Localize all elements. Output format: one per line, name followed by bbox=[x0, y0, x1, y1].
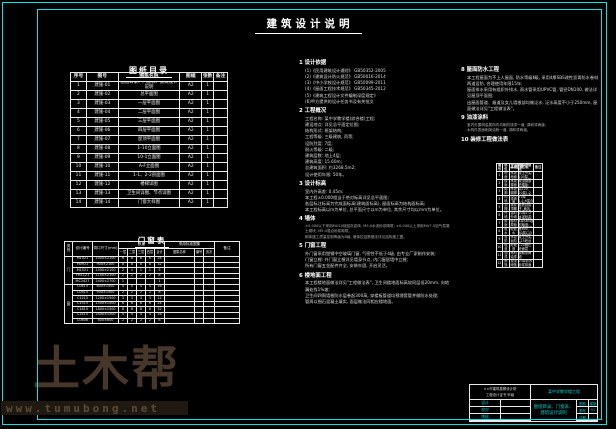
catalog-cell-size: A2 bbox=[180, 199, 202, 208]
catalog-cell-size: A2 bbox=[180, 82, 202, 91]
finish-header-name: 名称 bbox=[510, 164, 519, 172]
catalog-cell-name: 图纸目录、门窗表、建筑设计说明 bbox=[119, 82, 181, 91]
dw-header-qty-group: 数量 一层 二层 三层 四层 合计 bbox=[119, 242, 165, 257]
catalog-cell-count: 1 bbox=[202, 100, 214, 109]
catalog-cell-size: A2 bbox=[180, 190, 202, 199]
dw-header-floor3: 三层 bbox=[137, 249, 146, 257]
finish-cell-method: C20细石砼面层 bbox=[519, 244, 535, 252]
finish-cell-method: 4厚SBS卷材两道; 20厚砂浆保护层 bbox=[519, 220, 535, 228]
sheet-info-value bbox=[589, 414, 597, 420]
finish-cell-note bbox=[534, 252, 543, 260]
sheet-info-label: 图别 bbox=[577, 400, 589, 406]
catalog-cell-size: A2 bbox=[180, 145, 202, 154]
catalog-cell-no: 6 bbox=[71, 127, 87, 136]
catalog-cell-note bbox=[214, 199, 228, 208]
catalog-cell-no: 5 bbox=[71, 118, 87, 127]
finish-cell-name: 木材油漆 bbox=[510, 252, 519, 260]
finish-cell-method: 20厚1:3水泥砂浆; 外墙涂料 bbox=[519, 212, 535, 220]
catalog-cell-count: 1 bbox=[202, 136, 214, 145]
finish-header-row: 编号 部位 名称 用料及做法 备注 bbox=[497, 164, 543, 172]
finish-cell-name: 现浇雨篷 bbox=[510, 260, 519, 268]
catalog-row: 11 建施-11 1-1、2-2剖面图 A2 1 bbox=[71, 172, 228, 181]
catalog-cell-no: 1 bbox=[71, 82, 87, 91]
finish-cell-part: 地面 bbox=[503, 172, 510, 180]
dw-header-qty-sub: 一层 二层 三层 四层 合计 bbox=[119, 249, 165, 257]
finish-cell-note bbox=[534, 212, 543, 220]
title-block-bottom: 设计 校对 审核 图纸目录、门窗表、建筑设计说明 图别 建施 bbox=[470, 400, 597, 421]
catalog-cell-no: 9 bbox=[71, 154, 87, 163]
finish-row: 9 台阶 水泥台阶 素土夯实, C15砼台阶 bbox=[497, 236, 543, 244]
sheet-title-text: 建筑设计说明 bbox=[255, 16, 362, 34]
catalog-cell-name: 二层平面图 bbox=[119, 109, 181, 118]
note-line: ±0.000以下采用MU10烧结页岩砖, M5.0水泥砂浆砌筑; ±0.000以… bbox=[299, 224, 453, 235]
note-line: 屋面排水采用有组织外排水, 雨水管采用UPVC管, 管径DN100, 做法详见屋… bbox=[461, 87, 600, 99]
dw-header-qty: 数量 bbox=[119, 242, 165, 249]
dw-header-note: 备注 bbox=[215, 242, 240, 257]
finish-cell-name: 砼散水 bbox=[510, 228, 519, 236]
catalog-header-no: 序号 bbox=[71, 73, 87, 82]
finish-cell-part: 楼面 bbox=[503, 180, 510, 188]
catalog-cell-no: 10 bbox=[71, 163, 87, 172]
catalog-cell-no: 11 bbox=[71, 172, 87, 181]
design-notes-right: 8 屋面防水工程本工程屋面为不上人屋面, 防水等级Ⅱ级, 采用4厚SBS改性沥青… bbox=[461, 64, 600, 144]
note-line: (6)甲方提供的设计任务书及有关批文 bbox=[299, 99, 453, 105]
catalog-cell-name: A-F立面图 bbox=[119, 163, 181, 172]
door-window-main: 设计编号 洞口尺寸(mm) 数量 一层 二层 三层 四层 合计 采用标准图集 图 bbox=[73, 242, 240, 324]
catalog-cell-code: 建施-11 bbox=[87, 172, 119, 181]
catalog-cell-code: 建施-05 bbox=[87, 118, 119, 127]
catalog-header-name: 图纸名称 bbox=[119, 73, 181, 82]
finish-cell-note bbox=[534, 180, 543, 188]
finish-row: 5 顶棚 抹灰顶棚 板底刮腻子, 刷乳胶漆两道 bbox=[497, 204, 543, 212]
catalog-cell-code: 建施-09 bbox=[87, 154, 119, 163]
catalog-cell-size: A2 bbox=[180, 172, 202, 181]
catalog-cell-name: 总平面图 bbox=[119, 91, 181, 100]
finish-schedule-table: 编号 部位 名称 用料及做法 备注 1 地面 水泥地面 素土夯实; 100厚C1… bbox=[496, 163, 543, 268]
dw-cell-f3: 2 bbox=[137, 319, 146, 325]
dw-header: 设计编号 洞口尺寸(mm) 数量 一层 二层 三层 四层 合计 采用标准图集 图 bbox=[73, 242, 240, 257]
signature-rows: 设计 校对 审核 bbox=[470, 400, 531, 421]
note-line: 2 工程概况 bbox=[299, 108, 453, 115]
drawing-catalog-table: 序号 图号 图纸名称 图幅 张数 备注 1 建施-01 图纸目录、门窗表、建筑设… bbox=[70, 72, 228, 208]
signature-label: 审核 bbox=[470, 414, 501, 420]
finish-row: 6 外墙 涂料外墙 20厚1:3水泥砂浆; 外墙涂料 bbox=[497, 212, 543, 220]
catalog-cell-note bbox=[214, 163, 228, 172]
catalog-cell-code: 建施-07 bbox=[87, 136, 119, 145]
sheet-info: 图别 建施 图号 01 日期 bbox=[577, 400, 597, 421]
finish-cell-part: 外墙 bbox=[503, 212, 510, 220]
finish-cell-name: 砼坡道 bbox=[510, 244, 519, 252]
dw-header-atlas: 采用标准图集 bbox=[165, 242, 215, 249]
catalog-cell-note bbox=[214, 145, 228, 154]
finish-cell-name: 乳胶漆墙面 bbox=[510, 196, 519, 204]
catalog-cell-count: 1 bbox=[202, 82, 214, 91]
note-line: 设计使用年限: 50年。 bbox=[299, 172, 453, 178]
sheet-info-row: 图别 建施 bbox=[577, 400, 597, 407]
finish-cell-part: 坡道 bbox=[503, 244, 510, 252]
sheet-title: 建筑设计说明 bbox=[0, 12, 616, 34]
catalog-cell-code: 建施-08 bbox=[87, 145, 119, 154]
catalog-cell-note bbox=[214, 91, 228, 100]
finish-cell-method: 素土夯实, C15砼台阶 bbox=[519, 236, 535, 244]
finish-cell-part: 台阶 bbox=[503, 236, 510, 244]
catalog-cell-no: 3 bbox=[71, 100, 87, 109]
dw-cell-page bbox=[204, 319, 215, 325]
door-window-category-column: 类别 门 窗 bbox=[65, 242, 73, 324]
note-line: 10 装修工程做法表 bbox=[461, 137, 600, 144]
watermark-url: www.tumubong.net bbox=[1, 402, 160, 415]
catalog-cell-count: 1 bbox=[202, 154, 214, 163]
sheet-info-value: 建施 bbox=[589, 400, 597, 406]
finish-cell-part: 顶棚 bbox=[503, 204, 510, 212]
institute-line2: 工程设计证书 甲级 bbox=[470, 393, 530, 399]
finish-cell-part: 屋面 bbox=[503, 220, 510, 228]
finish-cell-note bbox=[534, 228, 543, 236]
sheet-info-row: 日期 bbox=[577, 414, 597, 421]
finish-cell-method: 15厚1:1:6混合砂浆; 刮腻子, 刷乳胶漆两道 bbox=[519, 196, 535, 204]
dw-header-atlas-name: 图集名称 bbox=[165, 249, 195, 257]
dw-header-category: 类别 bbox=[65, 242, 73, 257]
project-name: 某中学教学楼工程 bbox=[531, 385, 597, 400]
catalog-row: 4 建施-04 二层平面图 A2 1 bbox=[71, 109, 228, 118]
signature-value bbox=[501, 407, 530, 413]
note-line: 本工程标高以m为单位, 总平面尺寸以m为单位, 其余尺寸均以mm为单位。 bbox=[299, 207, 453, 213]
note-line: 本工程楼地面做法详见"工程做法表", 卫生间楼地面标高较同层低20mm, 向地漏… bbox=[299, 280, 453, 292]
catalog-cell-name: 门窗大样图 bbox=[119, 199, 181, 208]
finish-cell-name: 水泥地面 bbox=[510, 172, 519, 180]
note-line: 8 屋面防水工程 bbox=[461, 67, 600, 74]
catalog-cell-code: 建施-13 bbox=[87, 190, 119, 199]
finish-row: 10 坡道 砼坡道 C20细石砼面层 bbox=[497, 244, 543, 252]
finish-cell-method: 板底刮腻子, 刷乳胶漆两道 bbox=[519, 204, 535, 212]
finish-row: 4 内墙 乳胶漆墙面 15厚1:1:6混合砂浆; 刮腻子, 刷乳胶漆两道 bbox=[497, 196, 543, 204]
finish-cell-note bbox=[534, 204, 543, 212]
title-block: ××市建筑勘察设计院 工程设计证书 甲级 某中学教学楼工程 设计 校对 审核 bbox=[469, 384, 598, 422]
dw-header-atlas-sub: 图集名称 编号 页次 bbox=[165, 249, 215, 257]
note-line: 4 墙体 bbox=[299, 216, 453, 223]
note-line: 砌体施工质量控制等级为B级, 墙体拉结筋做法详见结构施工图。 bbox=[299, 235, 453, 240]
catalog-cell-no: 7 bbox=[71, 136, 87, 145]
catalog-cell-count: 1 bbox=[202, 190, 214, 199]
finish-cell-part: 内墙 bbox=[503, 196, 510, 204]
catalog-row: 14 建施-14 门窗大样图 A2 1 bbox=[71, 199, 228, 208]
catalog-cell-count: 1 bbox=[202, 181, 214, 190]
finish-cell-note bbox=[534, 244, 543, 252]
catalog-cell-name: 1-1、2-2剖面图 bbox=[119, 172, 181, 181]
catalog-cell-code: 建施-12 bbox=[87, 181, 119, 190]
signature-value bbox=[501, 400, 530, 406]
finish-row: 3 踢脚 水泥踢脚 高120, 20厚1:2水泥砂浆 bbox=[497, 188, 543, 196]
dw-cell-f2: 2 bbox=[128, 319, 137, 325]
catalog-header-code: 图号 bbox=[87, 73, 119, 82]
signature-label: 校对 bbox=[470, 407, 501, 413]
finish-cell-method: 宽600, 60厚C15砼随打随抹 bbox=[519, 228, 535, 236]
catalog-cell-size: A2 bbox=[180, 109, 202, 118]
note-line: 所有门窗五金配件齐全, 安装牢固, 开启灵活。 bbox=[299, 263, 453, 269]
catalog-header-note: 备注 bbox=[214, 73, 228, 82]
catalog-row: 6 建施-06 四层平面图 A2 1 bbox=[71, 127, 228, 136]
finish-row: 12 雨篷 现浇雨篷 20厚防水砂浆抹面 bbox=[497, 260, 543, 268]
catalog-row: 2 建施-02 总平面图 A2 1 bbox=[71, 91, 228, 100]
finish-row: 2 楼面 水泥楼面 现浇钢筋砼楼板; 20厚1:2水泥砂浆面层 bbox=[497, 180, 543, 188]
sheet-info-row: 图号 01 bbox=[577, 407, 597, 414]
catalog-cell-code: 建施-01 bbox=[87, 82, 119, 91]
catalog-cell-name: 10-1立面图 bbox=[119, 154, 181, 163]
catalog-cell-name: 屋顶平面图 bbox=[119, 136, 181, 145]
catalog-cell-note bbox=[214, 100, 228, 109]
catalog-cell-code: 建施-14 bbox=[87, 199, 119, 208]
design-notes-middle: 1 设计依据(1)《民用建筑设计通则》 GB50352-2005(2)《建筑设计… bbox=[299, 57, 453, 305]
catalog-cell-count: 1 bbox=[202, 109, 214, 118]
catalog-row: 8 建施-08 1-10立面图 A2 1 bbox=[71, 145, 228, 154]
finish-cell-name: 水泥台阶 bbox=[510, 236, 519, 244]
catalog-cell-name: 1-10立面图 bbox=[119, 145, 181, 154]
finish-cell-note bbox=[534, 172, 543, 180]
catalog-cell-name: 楼梯详图 bbox=[119, 181, 181, 190]
catalog-cell-size: A2 bbox=[180, 127, 202, 136]
window-row: C0606 600×600 2 2 2 2 8 bbox=[73, 319, 240, 325]
catalog-row: 13 建施-13 卫生间详图、节点详图 A2 1 bbox=[71, 190, 228, 199]
catalog-cell-note bbox=[214, 118, 228, 127]
catalog-cell-count: 1 bbox=[202, 127, 214, 136]
watermark-band: www.tumubong.net bbox=[1, 401, 188, 415]
catalog-cell-no: 2 bbox=[71, 91, 87, 100]
catalog-cell-size: A2 bbox=[180, 118, 202, 127]
finish-header-method: 用料及做法 bbox=[519, 164, 535, 172]
catalog-cell-no: 13 bbox=[71, 190, 87, 199]
finish-row: 11 油漆 木材油漆 调和漆两道 bbox=[497, 252, 543, 260]
catalog-row: 12 建施-12 楼梯详图 A2 1 bbox=[71, 181, 228, 190]
dw-header-atlas-group: 采用标准图集 图集名称 编号 页次 bbox=[165, 242, 215, 257]
signature-value bbox=[501, 414, 530, 420]
catalog-cell-no: 4 bbox=[71, 109, 87, 118]
finish-cell-method: 调和漆两道 bbox=[519, 252, 535, 260]
signature-row: 设计 bbox=[470, 400, 530, 407]
catalog-row: 1 建施-01 图纸目录、门窗表、建筑设计说明 A2 1 bbox=[71, 82, 228, 91]
design-institute: ××市建筑勘察设计院 工程设计证书 甲级 bbox=[470, 385, 531, 400]
catalog-row: 10 建施-10 A-F立面图 A2 1 bbox=[71, 163, 228, 172]
dw-header-floor2: 二层 bbox=[128, 249, 137, 257]
finish-cell-part: 雨篷 bbox=[503, 260, 510, 268]
catalog-row: 7 建施-07 屋顶平面图 A2 1 bbox=[71, 136, 228, 145]
catalog-cell-count: 1 bbox=[202, 91, 214, 100]
catalog-cell-code: 建施-02 bbox=[87, 91, 119, 100]
dw-cell-open: 600×600 bbox=[93, 319, 119, 325]
catalog-cell-no: 12 bbox=[71, 181, 87, 190]
catalog-cell-code: 建施-10 bbox=[87, 163, 119, 172]
catalog-cell-name: 四层平面图 bbox=[119, 127, 181, 136]
finish-cell-method: 现浇钢筋砼楼板; 20厚1:2水泥砂浆面层 bbox=[519, 180, 535, 188]
catalog-cell-count: 1 bbox=[202, 163, 214, 172]
dw-header-floor1: 一层 bbox=[119, 249, 128, 257]
catalog-cell-note bbox=[214, 82, 228, 91]
cad-sheet: 建筑设计说明 图纸目录 序号 图号 图纸名称 图幅 张数 备注 1 建施-01 … bbox=[0, 0, 616, 429]
finish-row: 7 屋面 卷材屋面 4厚SBS卷材两道; 20厚砂浆保护层 bbox=[497, 220, 543, 228]
finish-cell-note bbox=[534, 220, 543, 228]
finish-header-part: 部位 bbox=[503, 164, 510, 172]
catalog-row: 5 建施-05 三层平面图 A2 1 bbox=[71, 118, 228, 127]
sheet-info-label: 日期 bbox=[577, 414, 589, 420]
finish-cell-part: 油漆 bbox=[503, 252, 510, 260]
note-line: 9 油漆涂料 bbox=[461, 115, 600, 122]
catalog-header-count: 张数 bbox=[202, 73, 214, 82]
catalog-cell-code: 建施-04 bbox=[87, 109, 119, 118]
dw-cell-id: C0606 bbox=[73, 319, 93, 325]
catalog-cell-no: 8 bbox=[71, 145, 87, 154]
signature-row: 校对 bbox=[470, 407, 530, 414]
sheet-info-value: 01 bbox=[589, 407, 597, 413]
note-line: 3 设计标高 bbox=[299, 181, 453, 188]
watermark-brand: 土木帮 bbox=[33, 346, 180, 393]
signature-label: 设计 bbox=[470, 400, 501, 406]
catalog-cell-size: A2 bbox=[180, 154, 202, 163]
catalog-cell-code: 建施-03 bbox=[87, 100, 119, 109]
finish-cell-method: 20厚防水砂浆抹面 bbox=[519, 260, 535, 268]
finish-cell-method: 素土夯实; 100厚C10砼垫层; 20厚1:2水泥砂浆压光 bbox=[519, 172, 535, 180]
catalog-cell-name: 三层平面图 bbox=[119, 118, 181, 127]
finish-cell-part: 踢脚 bbox=[503, 188, 510, 196]
catalog-cell-name: 一层平面图 bbox=[119, 100, 181, 109]
dw-header-atlas-no: 编号 bbox=[195, 249, 204, 257]
dw-cell-sum: 8 bbox=[155, 319, 165, 325]
dw-cell-ano bbox=[195, 319, 204, 325]
note-line: 6 楼地面工程 bbox=[299, 273, 453, 280]
dw-header-floor4: 四层 bbox=[146, 249, 155, 257]
catalog-cell-size: A2 bbox=[180, 181, 202, 190]
catalog-cell-size: A2 bbox=[180, 163, 202, 172]
catalog-header-size: 图幅 bbox=[180, 73, 202, 82]
dw-group-door: 门 bbox=[65, 257, 73, 285]
dw-cell-atlas bbox=[165, 319, 195, 325]
note-line: 1 设计依据 bbox=[299, 60, 453, 67]
dw-cell-f1: 2 bbox=[119, 319, 128, 325]
note-line: 本工程屋面为不上人屋面, 防水等级Ⅱ级, 采用4厚SBS改性沥青防水卷材两道设防… bbox=[461, 75, 600, 87]
catalog-cell-note bbox=[214, 181, 228, 190]
note-line: 5 门窗工程 bbox=[299, 243, 453, 250]
finish-cell-name: 水泥楼面 bbox=[510, 180, 519, 188]
finish-header-note: 备注 bbox=[534, 164, 543, 172]
finish-cell-part: 散水 bbox=[503, 228, 510, 236]
catalog-header-row: 序号 图号 图纸名称 图幅 张数 备注 bbox=[71, 73, 228, 82]
catalog-cell-count: 1 bbox=[202, 145, 214, 154]
finish-cell-note bbox=[534, 236, 543, 244]
catalog-cell-note bbox=[214, 127, 228, 136]
catalog-cell-size: A2 bbox=[180, 91, 202, 100]
catalog-row: 9 建施-09 10-1立面图 A2 1 bbox=[71, 154, 228, 163]
catalog-cell-note bbox=[214, 109, 228, 118]
catalog-cell-no: 14 bbox=[71, 199, 87, 208]
finish-cell-note bbox=[534, 260, 543, 268]
finish-cell-note bbox=[534, 188, 543, 196]
finish-cell-name: 涂料外墙 bbox=[510, 212, 519, 220]
catalog-cell-size: A2 bbox=[180, 136, 202, 145]
dw-group-window: 窗 bbox=[65, 285, 73, 324]
dw-header-id: 设计编号 bbox=[73, 242, 93, 257]
note-line: 木构件表面刷润油粉一道, 调和漆两道。 bbox=[461, 128, 600, 133]
dw-header-sum: 合计 bbox=[155, 249, 165, 257]
catalog-cell-note bbox=[214, 154, 228, 163]
catalog-cell-note bbox=[214, 172, 228, 181]
finish-row: 1 地面 水泥地面 素土夯实; 100厚C10砼垫层; 20厚1:2水泥砂浆压光 bbox=[497, 172, 543, 180]
dw-cell-f4: 2 bbox=[146, 319, 155, 325]
catalog-cell-count: 1 bbox=[202, 118, 214, 127]
catalog-row: 3 建施-03 一层平面图 A2 1 bbox=[71, 100, 228, 109]
sheet-info-label: 图号 bbox=[577, 407, 589, 413]
catalog-cell-note bbox=[214, 136, 228, 145]
catalog-cell-count: 1 bbox=[202, 172, 214, 181]
finish-cell-note bbox=[534, 196, 543, 204]
finish-cell-name: 水泥踢脚 bbox=[510, 188, 519, 196]
dw-header-open: 洞口尺寸(mm) bbox=[93, 242, 119, 257]
door-window-table: 类别 门 窗 设计编号 洞口尺寸(mm) 数量 一层 二层 三层 四层 合计 bbox=[64, 241, 240, 324]
finish-cell-name: 抹灰顶棚 bbox=[510, 204, 519, 212]
sheet-name-cell: 图纸目录、门窗表、建筑设计说明 bbox=[531, 400, 577, 421]
catalog-cell-count: 1 bbox=[202, 199, 214, 208]
dw-header-page: 页次 bbox=[204, 249, 215, 257]
finish-cell-method: 高120, 20厚1:2水泥砂浆 bbox=[519, 188, 535, 196]
title-block-top: ××市建筑勘察设计院 工程设计证书 甲级 某中学教学楼工程 bbox=[470, 385, 597, 400]
note-line: 出屋面管道、烟道及女儿墙根部均做泛水, 泛水高度不小于250mm, 屋面做法详见… bbox=[461, 100, 600, 112]
catalog-cell-note bbox=[214, 190, 228, 199]
finish-row: 8 散水 砼散水 宽600, 60厚C15砼随打随抹 bbox=[497, 228, 543, 236]
catalog-cell-size: A2 bbox=[180, 100, 202, 109]
signature-row: 审核 bbox=[470, 414, 530, 421]
catalog-cell-name: 卫生间详图、节点详图 bbox=[119, 190, 181, 199]
finish-cell-name: 卷材屋面 bbox=[510, 220, 519, 228]
catalog-cell-code: 建施-06 bbox=[87, 127, 119, 136]
dw-cell-note bbox=[215, 319, 240, 325]
note-line: 管周以细石混凝土填实, 面层做法同相应楼地面。 bbox=[299, 299, 453, 305]
